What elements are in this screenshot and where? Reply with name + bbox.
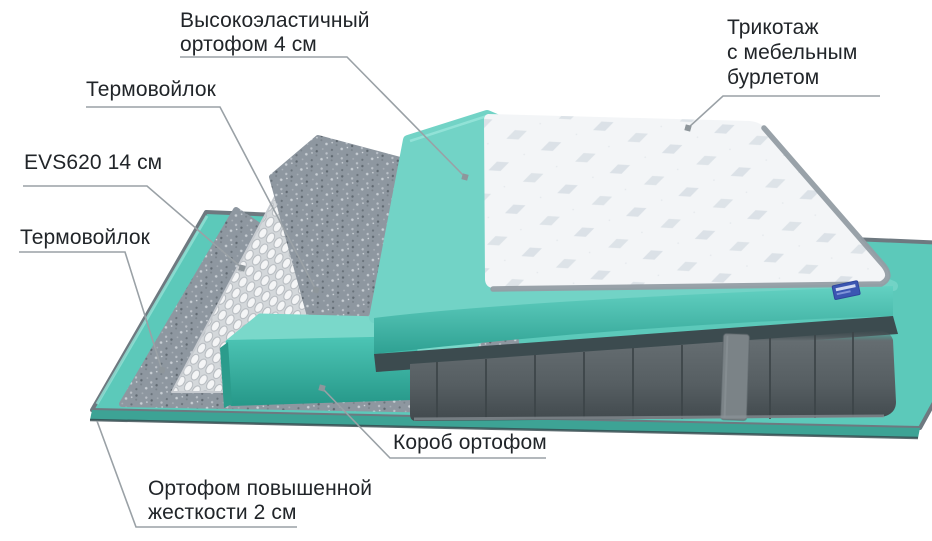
quilted-topper (484, 114, 889, 300)
label-felt-top: Термовойлок (86, 78, 216, 102)
label-base-foam: Ортофом повышенной жесткости 2 см (148, 477, 372, 525)
label-foam-4cm: Высокоэластичный ортофом 4 см (180, 9, 370, 57)
mattress-diagram: Высокоэластичный ортофом 4 см Термовойло… (0, 0, 932, 541)
label-foam-box: Короб ортофом (393, 431, 547, 455)
label-springs-evs620: EVS620 14 см (24, 151, 162, 175)
strap-handle (721, 334, 750, 421)
label-knit-cover: Трикотаж с мебельным бурлетом (727, 15, 857, 90)
label-felt-bottom: Термовойлок (20, 226, 150, 250)
